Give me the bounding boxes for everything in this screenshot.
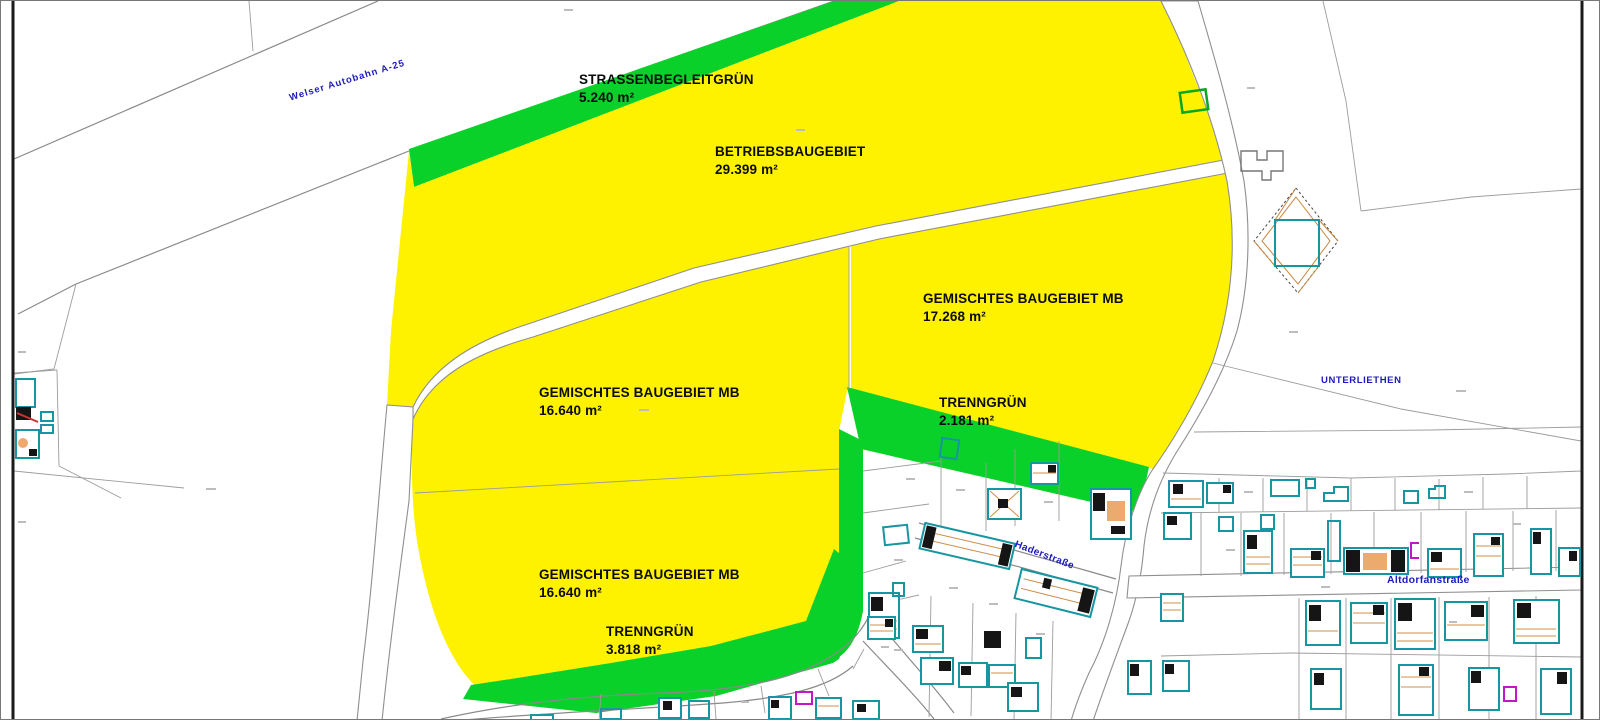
- building-footprint: [1541, 669, 1571, 714]
- building-footprint: [1163, 661, 1189, 691]
- label-unterliethen: UNTERLIETHEN: [1321, 375, 1402, 386]
- zone-area: 2.181 m²: [939, 412, 1027, 430]
- building-footprint: [1164, 513, 1191, 539]
- building-footprint: [921, 658, 953, 684]
- building-footprint: [1429, 486, 1445, 498]
- label-trenngruen-sued: TRENNGRÜN 3.818 m²: [606, 623, 694, 659]
- building-footprint: [1469, 668, 1499, 710]
- gray-building-outline: [1241, 151, 1283, 180]
- building-footprint: [988, 489, 1021, 519]
- zone-area: 17.268 m²: [923, 308, 1124, 326]
- zone-title: GEMISCHTES BAUGEBIET MB: [539, 384, 740, 402]
- long-building: [1015, 569, 1098, 617]
- zone-title: TRENNGRÜN: [606, 623, 694, 641]
- building-footprint: [1311, 669, 1341, 709]
- building-footprint: [1306, 601, 1340, 645]
- building-footprint: [1291, 549, 1324, 577]
- zone-area: 3.818 m²: [606, 641, 694, 659]
- reservoir-structure: [1254, 188, 1338, 293]
- building-footprint: [1399, 665, 1433, 715]
- building-footprint: [1169, 481, 1203, 507]
- zone-title: GEMISCHTES BAUGEBIET MB: [923, 290, 1124, 308]
- building-footprint: [1474, 534, 1503, 576]
- building-footprint: [816, 698, 841, 718]
- label-gemischtes-sued: GEMISCHTES BAUGEBIET MB 16.640 m²: [539, 566, 740, 602]
- building-footprint: [1514, 600, 1559, 643]
- label-betriebsbaugebiet: BETRIEBSBAUGEBIET 29.399 m²: [715, 143, 865, 179]
- zone-title: GEMISCHTES BAUGEBIET MB: [539, 566, 740, 584]
- building-footprint: [1559, 548, 1580, 576]
- building-footprint: [1324, 487, 1348, 501]
- long-building: [919, 523, 1014, 569]
- building-footprint: [868, 617, 895, 639]
- building-footprint: [769, 697, 791, 719]
- label-gemischtes-nord: GEMISCHTES BAUGEBIET MB 17.268 m²: [923, 290, 1124, 326]
- building-footprint: [959, 663, 987, 687]
- building-footprint: [1161, 594, 1183, 621]
- label-strasse-ost: Altdorfanstraße: [1387, 574, 1470, 586]
- long-building: [1344, 548, 1408, 574]
- zone-title: BETRIEBSBAUGEBIET: [715, 143, 865, 161]
- building-footprint: [1008, 683, 1038, 711]
- building-footprint: [913, 626, 943, 652]
- building-footprint: [1531, 529, 1551, 574]
- zone-area: 16.640 m²: [539, 402, 740, 420]
- building-footprint: [1031, 463, 1058, 484]
- building-footprint: [1351, 603, 1387, 643]
- zone-area: 5.240 m²: [579, 89, 754, 107]
- building-footprint: [1091, 489, 1131, 539]
- left-margin-buildings: [16, 379, 53, 458]
- building-footprint: [1428, 549, 1461, 577]
- zone-title: TRENNGRÜN: [939, 394, 1027, 412]
- building-footprint: [1244, 531, 1272, 573]
- building-footprint: [1128, 661, 1151, 694]
- road-west: [357, 405, 413, 720]
- label-strassenbegleitgruen: STRASSENBEGLEITGRÜN 5.240 m²: [579, 71, 754, 107]
- zoning-plan-map: STRASSENBEGLEITGRÜN 5.240 m² BETRIEBSBAU…: [0, 0, 1600, 720]
- building-footprint: [1207, 483, 1233, 503]
- housing-cluster-east: [1161, 479, 1580, 715]
- zone-area: 29.399 m²: [715, 161, 865, 179]
- label-trenngruen-ost: TRENNGRÜN 2.181 m²: [939, 394, 1027, 430]
- plan-geometry: [1, 1, 1600, 720]
- building-footprint: [1395, 599, 1435, 649]
- zone-title: STRASSENBEGLEITGRÜN: [579, 71, 754, 89]
- building-footprint: [853, 701, 879, 719]
- zone-area: 16.640 m²: [539, 584, 740, 602]
- label-gemischtes-mitte: GEMISCHTES BAUGEBIET MB 16.640 m²: [539, 384, 740, 420]
- building-footprint: [659, 698, 681, 718]
